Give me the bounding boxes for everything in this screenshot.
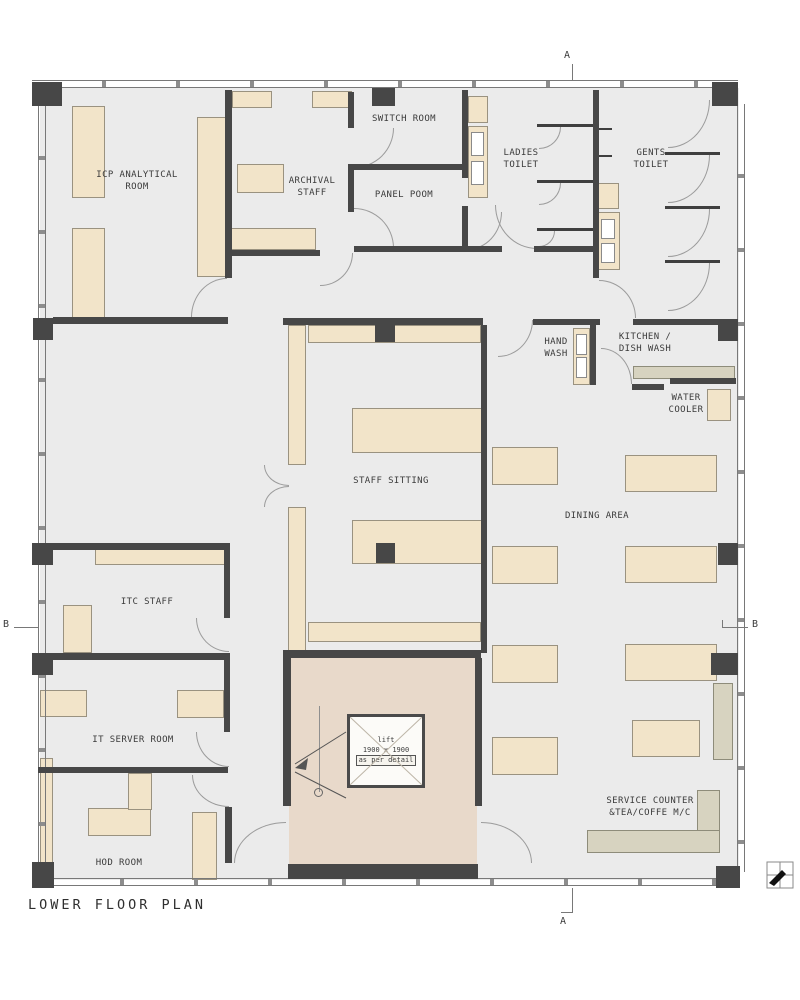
desk: [232, 91, 272, 108]
wall-segment: [53, 543, 230, 550]
wall-segment: [283, 658, 291, 806]
desk: [192, 812, 217, 880]
room-label-water-cooler: WATER COOLER: [656, 393, 716, 416]
column: [711, 653, 738, 675]
desk: [632, 720, 700, 757]
counter: [587, 830, 720, 853]
desk: [177, 690, 224, 718]
wall-segment: [670, 378, 736, 384]
counter: [713, 683, 733, 760]
window-wall-right: [737, 104, 745, 872]
section-leader-line: [722, 627, 748, 628]
desk: [492, 645, 558, 683]
stair-direction-arrow: [292, 728, 348, 800]
wall-segment: [224, 660, 230, 732]
column: [718, 543, 738, 565]
wall-segment: [590, 325, 596, 385]
desk: [308, 622, 481, 642]
desk: [492, 546, 558, 584]
column: [716, 866, 740, 888]
sink: [471, 161, 484, 185]
column: [32, 862, 54, 888]
wall-segment: [350, 164, 464, 170]
lift-shaft: lift 1900 x 1900 as per detail: [347, 714, 425, 788]
desk: [492, 737, 558, 775]
desk: [88, 808, 151, 836]
section-leader-line: [561, 912, 573, 913]
stall-partition: [599, 128, 612, 130]
desk: [312, 91, 352, 108]
section-marker-b-left: B: [3, 619, 9, 630]
desk: [72, 228, 105, 318]
room-label-hod: HOD ROOM: [74, 858, 164, 870]
column: [32, 543, 53, 565]
room-label-icp: ICP ANALYTICAL ROOM: [67, 170, 207, 193]
sink: [471, 132, 484, 156]
stall-partition: [537, 180, 593, 183]
room-label-ladies-toilet: LADIES TOILET: [486, 148, 556, 171]
desk: [40, 690, 87, 717]
room-label-switch-room: SWITCH ROOM: [354, 114, 454, 126]
room-label-hand-wash: HAND WASH: [528, 337, 584, 360]
room-label-panel-room: PANEL POOM: [354, 190, 454, 202]
section-leader-line: [572, 64, 573, 80]
window-wall-left: [38, 86, 46, 878]
column: [718, 323, 738, 341]
room-label-archival: ARCHIVAL STAFF: [267, 176, 357, 199]
wall-segment: [593, 90, 599, 278]
column: [375, 320, 395, 342]
wall-segment: [224, 550, 230, 618]
desk: [468, 96, 488, 123]
plan-title: LOWER FLOOR PLAN: [28, 897, 288, 915]
desk: [352, 408, 483, 453]
room-label-kitchen: KITCHEN / DISH WASH: [600, 332, 690, 355]
wall-segment: [53, 653, 230, 660]
desk: [625, 455, 717, 492]
floor-plan-canvas: lift 1900 x 1900 as per detail ICP ANALY…: [0, 0, 800, 1000]
wall-segment: [534, 246, 594, 252]
room-label-dining: DINING AREA: [552, 511, 642, 523]
section-leader-line: [572, 888, 573, 912]
desk: [288, 325, 306, 465]
window-wall-bottom: [50, 878, 718, 886]
section-marker-b-right: B: [752, 619, 758, 630]
lift-cross-lines: [350, 717, 422, 785]
section-marker-a-top: A: [564, 50, 570, 61]
desk: [625, 644, 717, 681]
room-label-gents-toilet: GENTS TOILET: [616, 148, 686, 171]
wall-segment: [475, 658, 482, 806]
wall-segment: [354, 246, 464, 252]
wall-segment: [38, 767, 228, 773]
desk: [197, 117, 227, 277]
stall-partition: [537, 228, 593, 231]
room-label-itc-staff: ITC STAFF: [102, 597, 192, 609]
room-label-it-server: IT SERVER ROOM: [73, 735, 193, 747]
desk: [492, 447, 558, 485]
desk: [598, 183, 619, 209]
column: [32, 82, 62, 106]
desk: [625, 546, 717, 583]
desk: [228, 228, 316, 250]
sink: [601, 219, 615, 239]
section-marker-a-bottom: A: [560, 916, 566, 927]
sink: [601, 243, 615, 263]
section-leader-line: [722, 620, 723, 628]
wall-segment: [283, 650, 481, 658]
wall-segment: [462, 90, 468, 178]
room-label-staff-sitting: STAFF SITTING: [336, 476, 446, 488]
wall-segment: [468, 246, 502, 252]
desk: [288, 507, 306, 653]
desk: [63, 605, 92, 653]
wall-segment: [632, 384, 664, 390]
stall-partition: [665, 206, 720, 209]
wall-segment: [481, 325, 487, 653]
column: [32, 653, 53, 675]
column: [376, 543, 395, 563]
desk: [95, 548, 225, 565]
room-label-service-counter: SERVICE COUNTER &TEA/COFFE M/C: [590, 796, 710, 819]
desk: [352, 520, 483, 564]
wall-segment: [225, 807, 232, 863]
window-wall-top: [32, 80, 738, 88]
wall-segment: [288, 864, 478, 879]
column: [372, 88, 395, 106]
stall-partition: [599, 155, 612, 157]
column: [712, 82, 738, 106]
north-arrow-icon: [766, 861, 794, 889]
desk: [128, 773, 152, 810]
wall-segment: [228, 250, 320, 256]
column: [33, 318, 53, 340]
stall-partition: [665, 260, 720, 263]
section-leader-line: [14, 627, 38, 628]
stall-partition: [537, 124, 593, 127]
wall-segment: [53, 317, 228, 324]
